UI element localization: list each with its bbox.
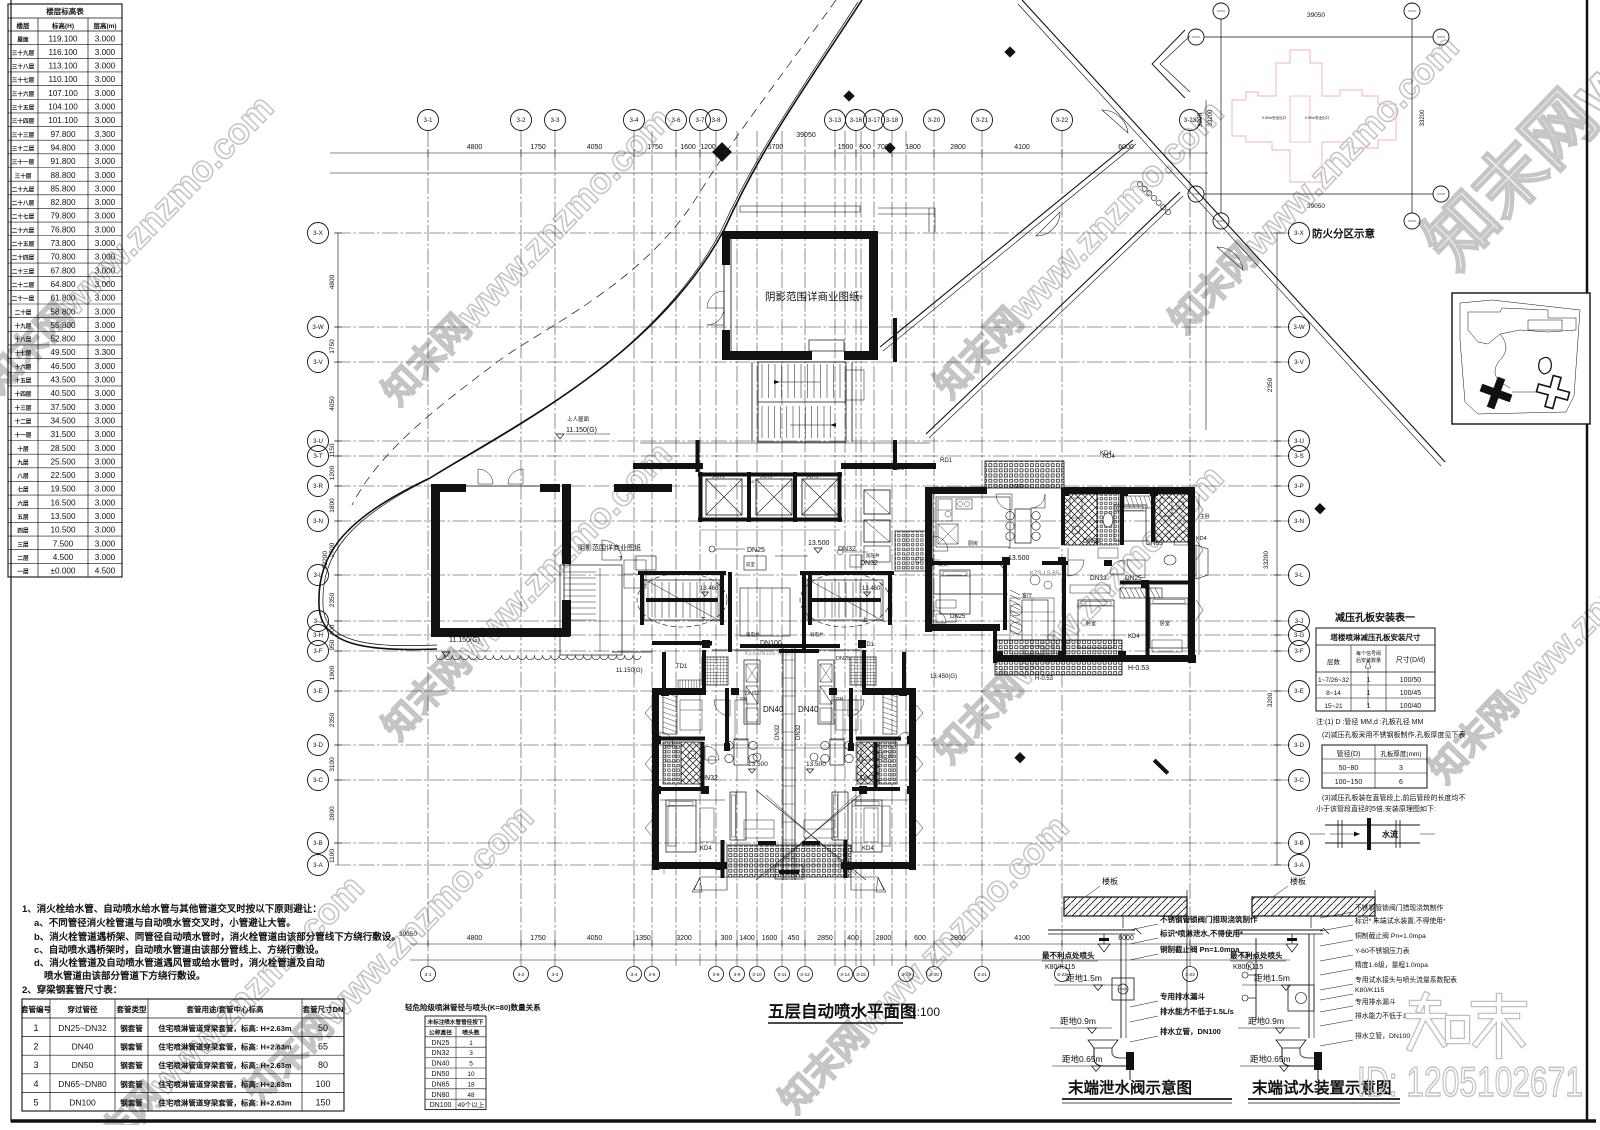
svg-text:DN32: DN32 (432, 1050, 450, 1057)
svg-text:3: 3 (469, 1050, 473, 1057)
svg-text:91.800: 91.800 (50, 157, 75, 166)
svg-text:33200: 33200 (1263, 551, 1270, 569)
svg-text:3.300: 3.300 (95, 348, 116, 357)
svg-text:K80/K115: K80/K115 (1045, 964, 1075, 971)
svg-text:1~7/26~32: 1~7/26~32 (1318, 677, 1349, 684)
svg-text:DN40: DN40 (72, 1042, 94, 1052)
svg-text:阴影范围详商业图纸: 阴影范围详商业图纸 (578, 543, 641, 552)
svg-text:距地0.65m: 距地0.65m (1250, 1054, 1291, 1064)
svg-text:82.800: 82.800 (50, 198, 75, 207)
svg-text:尺寸(D/d): 尺寸(D/d) (1396, 655, 1426, 664)
svg-text:3.000: 3.000 (95, 225, 116, 234)
svg-text:1350: 1350 (635, 935, 651, 942)
svg-text:3.000: 3.000 (95, 34, 116, 43)
svg-text:标高(H): 标高(H) (51, 21, 74, 30)
svg-text:3-A: 3-A (313, 862, 324, 869)
svg-text:卧室: 卧室 (1160, 620, 1170, 627)
svg-text:3-6: 3-6 (672, 117, 682, 124)
svg-text:4.500: 4.500 (53, 553, 74, 562)
svg-text:0.90m安全出口: 0.90m安全出口 (1305, 115, 1330, 120)
svg-text:住宅喷淋管道穿梁套管，标高: H+2.63m: 住宅喷淋管道穿梁套管，标高: H+2.63m (158, 1079, 291, 1089)
svg-text:100~150: 100~150 (1335, 779, 1363, 786)
svg-text:三十一层: 三十一层 (12, 158, 35, 166)
svg-text:4800: 4800 (467, 935, 483, 942)
svg-text:3-9: 3-9 (734, 972, 741, 978)
svg-text:3-R: 3-R (313, 483, 324, 490)
svg-text:3200: 3200 (1267, 692, 1274, 707)
svg-text:住宅喷淋管道穿梁套管，标高: H+2.63m: 住宅喷淋管道穿梁套管，标高: H+2.63m (158, 1042, 291, 1052)
svg-text:3-5: 3-5 (649, 972, 656, 978)
svg-text:3: 3 (1399, 765, 1403, 772)
svg-text:3-X: 3-X (313, 230, 323, 237)
svg-text:7.500: 7.500 (53, 539, 74, 548)
svg-text:2800: 2800 (950, 144, 966, 151)
svg-text:二十四层: 二十四层 (12, 254, 35, 262)
svg-text:11.150(G): 11.150(G) (616, 668, 643, 674)
svg-text:3.000: 3.000 (95, 212, 116, 221)
svg-text:ID: 1205102671: ID: 1205102671 (1357, 1058, 1583, 1105)
svg-text:10.500: 10.500 (50, 526, 75, 535)
svg-text:楼板: 楼板 (1102, 876, 1118, 886)
svg-text:55.800: 55.800 (50, 321, 75, 330)
svg-text:46.500: 46.500 (50, 362, 75, 371)
svg-text:DN32: DN32 (700, 775, 718, 782)
svg-text:2800: 2800 (950, 935, 966, 942)
svg-text:KD4: KD4 (1196, 536, 1207, 542)
svg-text:RD1: RD1 (940, 458, 953, 464)
svg-text:13.500: 13.500 (808, 540, 830, 547)
svg-text:48: 48 (467, 1092, 475, 1099)
svg-text:专用试水接头与喷头流量系数配表: 专用试水接头与喷头流量系数配表 (1355, 975, 1457, 984)
svg-text:1500: 1500 (838, 144, 854, 151)
svg-text:DN25: DN25 (432, 1040, 450, 1047)
svg-text:商业: 商业 (855, 293, 863, 299)
svg-text:2800: 2800 (876, 935, 892, 942)
svg-text:3.000: 3.000 (95, 485, 116, 494)
svg-text:119.100: 119.100 (49, 34, 78, 43)
svg-text:49.500: 49.500 (50, 348, 75, 357)
svg-text:十六层: 十六层 (15, 363, 32, 371)
svg-text:前室: 前室 (746, 561, 755, 568)
svg-text:19.500: 19.500 (50, 485, 75, 494)
svg-text:3.000: 3.000 (95, 239, 116, 248)
svg-text:2350: 2350 (329, 592, 336, 607)
svg-text:150: 150 (315, 1097, 330, 1107)
svg-text:H-0.53: H-0.53 (1035, 676, 1054, 682)
svg-text:3-H: 3-H (313, 632, 323, 639)
svg-text:600: 600 (914, 935, 926, 942)
svg-text:钢套管: 钢套管 (120, 1060, 143, 1070)
svg-text:100/45: 100/45 (1400, 690, 1422, 697)
svg-text:107.100: 107.100 (48, 89, 78, 98)
svg-text:距地0.9m: 距地0.9m (1248, 1016, 1284, 1026)
svg-text:1150: 1150 (329, 443, 336, 457)
svg-text:住宅喷淋管道穿梁套管，标高: H+2.63m: 住宅喷淋管道穿梁套管，标高: H+2.63m (158, 1097, 291, 1107)
svg-text:2800: 2800 (329, 806, 336, 821)
svg-text:50~80: 50~80 (1339, 765, 1359, 772)
svg-text:强电井: 强电井 (746, 631, 760, 638)
svg-text:49个以上: 49个以上 (458, 1100, 485, 1109)
svg-text:层高(m): 层高(m) (92, 21, 116, 30)
svg-text:3-F: 3-F (1294, 648, 1304, 655)
svg-text:3-19: 3-19 (901, 972, 911, 978)
svg-text:3-DT1: 3-DT1 (712, 474, 725, 479)
svg-text:DN50: DN50 (432, 1071, 450, 1078)
svg-text:3.000: 3.000 (95, 553, 116, 562)
svg-text:16.500: 16.500 (50, 498, 75, 507)
svg-text:39050: 39050 (399, 931, 417, 938)
svg-text:39050: 39050 (796, 132, 816, 139)
svg-text:1: 1 (1367, 703, 1371, 710)
svg-text:88.800: 88.800 (50, 171, 75, 180)
svg-text:上人屋面: 上人屋面 (567, 415, 590, 423)
svg-text:DN65: DN65 (432, 1081, 450, 1088)
svg-text:3-13: 3-13 (829, 117, 842, 124)
svg-text:轻危险级喷淋管径与喷头(K=80)数量关系: 轻危险级喷淋管径与喷头(K=80)数量关系 (405, 1002, 541, 1012)
svg-text:十层: 十层 (17, 445, 29, 453)
svg-text:61.800: 61.800 (50, 294, 75, 303)
svg-text:DN40: DN40 (432, 1061, 450, 1068)
svg-text:十三层: 十三层 (15, 404, 32, 412)
svg-text:1200: 1200 (329, 465, 336, 480)
svg-text:3-DT2: 3-DT2 (760, 474, 773, 479)
svg-text:3-U: 3-U (1294, 438, 1304, 445)
svg-text:排水立管，DN100: 排水立管，DN100 (1160, 1026, 1221, 1036)
svg-text:层数: 层数 (1327, 657, 1341, 666)
svg-text:13.450(G): 13.450(G) (930, 674, 957, 680)
svg-text:楼板: 楼板 (1290, 876, 1306, 886)
svg-text:3-4: 3-4 (630, 117, 640, 124)
svg-text:80: 80 (318, 1060, 328, 1070)
svg-text:十一层: 十一层 (15, 431, 32, 439)
svg-text:64.800: 64.800 (50, 280, 75, 289)
svg-text:3-20: 3-20 (928, 117, 941, 124)
svg-text:1800: 1800 (329, 498, 336, 513)
svg-text:玄关: 玄关 (938, 561, 948, 568)
svg-text:小于该管段直径的5倍,安装原理图如下:: 小于该管段直径的5倍,安装原理图如下: (1316, 804, 1436, 813)
svg-text:4.500: 4.500 (95, 567, 116, 576)
svg-text:标识* 末端试水装置,不得使用*: 标识* 末端试水装置,不得使用* (1355, 916, 1446, 925)
svg-text:住宅喷淋管道穿梁套管，标高: H+2.63m: 住宅喷淋管道穿梁套管，标高: H+2.63m (158, 1023, 291, 1033)
svg-text:3-21: 3-21 (977, 972, 987, 978)
svg-text:3-E: 3-E (1294, 688, 1304, 695)
svg-text:3-3: 3-3 (551, 117, 561, 124)
svg-text:3.000: 3.000 (95, 184, 116, 193)
svg-text:楼层: 楼层 (17, 21, 31, 30)
svg-text:3-B: 3-B (1294, 840, 1304, 847)
svg-text:300: 300 (721, 935, 733, 942)
svg-text:3.000: 3.000 (95, 116, 116, 125)
svg-text:3.000: 3.000 (95, 321, 116, 330)
svg-text:3-X: 3-X (1294, 230, 1304, 237)
svg-text:3.000: 3.000 (95, 471, 116, 480)
svg-text:13.500: 13.500 (748, 761, 768, 768)
svg-text:79.800: 79.800 (50, 212, 75, 221)
svg-text:塔楼喷淋减压孔板安装尺寸: 塔楼喷淋减压孔板安装尺寸 (1331, 632, 1421, 642)
svg-text:22.500: 22.500 (50, 471, 75, 480)
svg-text:专用排水漏斗: 专用排水漏斗 (1355, 997, 1396, 1006)
svg-text:3-P: 3-P (1294, 483, 1304, 490)
svg-text:3.000: 3.000 (95, 498, 116, 507)
svg-text:5: 5 (469, 1061, 473, 1068)
svg-text:4100: 4100 (1014, 935, 1030, 942)
svg-text:DN32: DN32 (860, 775, 878, 782)
svg-text:七层: 七层 (17, 486, 29, 494)
svg-text:6: 6 (1399, 779, 1403, 786)
svg-text:二十七层: 二十七层 (12, 213, 35, 221)
svg-text:一层: 一层 (17, 568, 29, 576)
svg-text:距地0.65m: 距地0.65m (1062, 1054, 1103, 1064)
svg-text:3.000: 3.000 (95, 253, 116, 262)
svg-text:4100: 4100 (1014, 144, 1030, 151)
svg-text:3.000: 3.000 (95, 430, 116, 439)
svg-text:100/40: 100/40 (1400, 703, 1422, 710)
svg-text:18: 18 (467, 1081, 475, 1088)
svg-text:2350: 2350 (329, 712, 336, 727)
svg-text:3-12: 3-12 (800, 972, 810, 978)
svg-text:3.000: 3.000 (95, 526, 116, 535)
svg-text:1750: 1750 (530, 144, 546, 151)
svg-text:十八层: 十八层 (15, 336, 32, 344)
svg-text:RD1: RD1 (893, 466, 904, 472)
svg-text:11.150(G): 11.150(G) (449, 637, 480, 644)
svg-text:3-2: 3-2 (517, 117, 527, 124)
svg-text:不锈钢管锁阀门措现浇筑制作: 不锈钢管锁阀门措现浇筑制作 (1160, 914, 1258, 924)
svg-text:楼层标高表: 楼层标高表 (46, 6, 84, 16)
svg-text:三十九层: 三十九层 (12, 49, 35, 57)
svg-text:三十五层: 三十五层 (12, 104, 35, 112)
svg-text:下: 下 (618, 556, 623, 562)
svg-text:二十五层: 二十五层 (12, 240, 35, 248)
svg-text:3.000: 3.000 (95, 171, 116, 180)
svg-text:3-L: 3-L (1295, 572, 1305, 579)
svg-text:3-C: 3-C (313, 777, 324, 784)
svg-text:13.500: 13.500 (1008, 555, 1030, 562)
svg-text:3.000: 3.000 (95, 457, 116, 466)
svg-text:1800: 1800 (905, 144, 921, 151)
svg-text:上: 上 (862, 616, 868, 624)
svg-text:3-23: 3-23 (1184, 117, 1197, 124)
svg-text:3-16: 3-16 (850, 117, 863, 124)
svg-text:最不利点处喷头: 最不利点处喷头 (1230, 950, 1283, 960)
svg-text:十七层: 十七层 (15, 349, 32, 357)
svg-text:十五层: 十五层 (15, 377, 32, 385)
svg-text:DN32: DN32 (1010, 484, 1024, 490)
svg-text:DN25: DN25 (950, 614, 966, 620)
svg-text:三十二层: 三十二层 (12, 144, 35, 152)
svg-text:3-N: 3-N (1294, 518, 1304, 525)
svg-text:33200: 33200 (1420, 109, 1426, 126)
svg-text:3.000: 3.000 (95, 389, 116, 398)
svg-text:67.800: 67.800 (50, 266, 75, 275)
svg-text:13.500: 13.500 (806, 761, 826, 768)
svg-text:94.800: 94.800 (50, 143, 75, 152)
svg-text:3100: 3100 (329, 757, 336, 772)
svg-text:76.800: 76.800 (50, 225, 75, 234)
svg-text:九层: 九层 (16, 458, 29, 466)
svg-text:3.000: 3.000 (95, 307, 116, 316)
svg-text:13.460: 13.460 (700, 586, 719, 592)
svg-text:3200: 3200 (1197, 112, 1204, 127)
svg-text:73.800: 73.800 (50, 239, 75, 248)
svg-text:3-11: 3-11 (777, 972, 787, 978)
svg-text:三十六层: 三十六层 (12, 90, 35, 98)
svg-text:4: 4 (33, 1079, 38, 1089)
svg-text:未标注喷水管管径按下: 未标注喷水管管径按下 (428, 1018, 484, 1026)
svg-text:33200: 33200 (1208, 109, 1214, 126)
svg-text:精度1.6级，量程1.0mpa: 精度1.6级，量程1.0mpa (1355, 960, 1428, 969)
svg-text:二十二层: 二十二层 (12, 281, 35, 289)
svg-text:1600: 1600 (762, 935, 778, 942)
svg-text:排水立管，DN100: 排水立管，DN100 (1355, 1031, 1410, 1040)
svg-text:3-2: 3-2 (518, 972, 525, 978)
svg-text:最不利点处喷头: 最不利点处喷头 (1042, 950, 1095, 960)
svg-text:DN32: DN32 (1090, 575, 1107, 582)
svg-text:DN32: DN32 (775, 724, 781, 740)
svg-text:a、不同管径消火栓管道与自动喷水管交叉时，小管避让大管。: a、不同管径消火栓管道与自动喷水管交叉时，小管避让大管。 (34, 917, 296, 929)
svg-text:1750: 1750 (329, 339, 336, 354)
svg-text:每个信号阀: 每个信号阀 (1356, 650, 1381, 657)
svg-text:(3)减压孔板装在直管段上,前后管段的长度均不: (3)减压孔板装在直管段上,前后管段的长度均不 (1322, 793, 1466, 802)
svg-text:GM: GM (836, 696, 844, 701)
svg-text:3-20: 3-20 (929, 972, 939, 978)
svg-text:DN40: DN40 (798, 705, 819, 714)
svg-text:标识*喷淋泄水,不得使用*: 标识*喷淋泄水,不得使用* (1159, 928, 1243, 938)
svg-text:1750: 1750 (530, 935, 546, 942)
svg-text:二十六层: 二十六层 (12, 226, 35, 234)
svg-text:3-T: 3-T (313, 453, 323, 460)
svg-text:3-8: 3-8 (712, 117, 722, 124)
svg-text:3-10: 3-10 (752, 972, 762, 978)
svg-text:注:(1) D :管径 MM,d :孔板孔径 MM: 注:(1) D :管径 MM,d :孔板孔径 MM (1316, 717, 1423, 726)
svg-text:减压孔板安装表一: 减压孔板安装表一 (1335, 611, 1415, 624)
svg-text:1: 1 (33, 1023, 38, 1033)
svg-text:喷头数: 喷头数 (462, 1028, 480, 1036)
svg-text:DN32: DN32 (860, 560, 878, 567)
svg-text:Y-60不锈钢压力表: Y-60不锈钢压力表 (1355, 946, 1410, 955)
svg-text:3-4: 3-4 (631, 972, 638, 978)
svg-text:KD4: KD4 (1100, 451, 1112, 457)
svg-text:距地1.5m: 距地1.5m (1066, 973, 1102, 983)
svg-text:钢套管: 钢套管 (120, 1042, 143, 1052)
svg-text:3-D: 3-D (313, 742, 324, 749)
svg-text:三十三层: 三十三层 (12, 131, 35, 139)
svg-text:1: 1 (469, 1040, 473, 1047)
svg-text:400: 400 (847, 935, 859, 942)
svg-text:二十八层: 二十八层 (12, 199, 35, 207)
svg-text:钢套管: 钢套管 (120, 1023, 143, 1033)
svg-text:3-1: 3-1 (425, 972, 432, 978)
svg-text:屋面: 屋面 (17, 35, 29, 43)
svg-text:穿过管径: 穿过管径 (68, 1004, 98, 1014)
svg-text:DN25: DN25 (1125, 575, 1142, 582)
svg-text:100/50: 100/50 (1400, 677, 1422, 684)
svg-text:K80/K115: K80/K115 (1233, 964, 1263, 971)
svg-text:11.150(G): 11.150(G) (566, 427, 597, 434)
svg-text:H-0.53: H-0.53 (1128, 665, 1149, 672)
svg-text:1750: 1750 (647, 144, 663, 151)
svg-text:防火分区示意: 防火分区示意 (1312, 227, 1375, 240)
svg-text:DN32: DN32 (1083, 538, 1101, 545)
svg-text:套管编号: 套管编号 (21, 1004, 51, 1014)
svg-text:DN25~DN32: DN25~DN32 (58, 1023, 107, 1033)
svg-text:101.100: 101.100 (48, 116, 78, 125)
svg-text:TD1: TD1 (676, 664, 688, 670)
svg-text:d、消火栓管道及自动喷水管道遇风管或给水管时，消火栓管道及自: d、消火栓管道及自动喷水管道遇风管或给水管时，消火栓管道及自动 (34, 957, 325, 969)
svg-text:3-N: 3-N (313, 518, 323, 525)
svg-text:3-1: 3-1 (424, 117, 434, 124)
svg-text:3-3: 3-3 (552, 972, 559, 978)
svg-text:58.800: 58.800 (50, 307, 75, 316)
svg-text:13.460: 13.460 (862, 586, 881, 592)
svg-text:34.500: 34.500 (50, 416, 75, 425)
svg-text:65: 65 (318, 1042, 328, 1052)
svg-text:3-21: 3-21 (976, 117, 989, 124)
svg-text:六层: 六层 (17, 499, 29, 507)
svg-text:KD4: KD4 (1128, 634, 1140, 640)
svg-text:五层自动喷水平面图: 五层自动喷水平面图 (768, 1001, 917, 1021)
svg-text:2: 2 (33, 1042, 38, 1052)
svg-text:3-DT1: 3-DT1 (748, 479, 760, 484)
svg-text:450: 450 (788, 935, 800, 942)
svg-text:3-F: 3-F (313, 648, 323, 655)
svg-text:二十三层: 二十三层 (12, 267, 35, 275)
svg-text:孔板厚度(mm): 孔板厚度(mm) (1380, 749, 1421, 758)
svg-text:4800: 4800 (329, 274, 336, 289)
svg-text:3.300: 3.300 (95, 130, 116, 139)
svg-text:3-17: 3-17 (868, 117, 881, 124)
svg-text:1:100: 1:100 (910, 1005, 940, 1019)
svg-text:5700: 5700 (768, 144, 784, 151)
svg-text:3200: 3200 (676, 935, 692, 942)
svg-text:十九层: 十九层 (15, 322, 32, 330)
svg-text:三十七层: 三十七层 (12, 76, 35, 84)
svg-text:住宅喷淋管道穿梁套管，标高: H+2.63m: 住宅喷淋管道穿梁套管，标高: H+2.63m (158, 1060, 291, 1070)
svg-text:10: 10 (467, 1071, 475, 1078)
svg-text:1200: 1200 (700, 144, 716, 151)
svg-text:DN32: DN32 (796, 724, 802, 740)
svg-text:DN32: DN32 (745, 691, 759, 697)
svg-text:三十层: 三十层 (15, 172, 32, 180)
svg-text:3.000: 3.000 (95, 539, 116, 548)
svg-text:3-7: 3-7 (696, 117, 706, 124)
svg-text:15~21: 15~21 (1324, 703, 1343, 710)
svg-text:3.000: 3.000 (95, 198, 116, 207)
svg-text:4050: 4050 (329, 396, 336, 411)
svg-text:二十一层: 二十一层 (12, 295, 35, 303)
svg-text:弱电井: 弱电井 (810, 631, 824, 638)
svg-text:K80/K115: K80/K115 (1355, 987, 1385, 994)
svg-text:2、穿梁钢套管尺寸表：: 2、穿梁钢套管尺寸表： (22, 984, 122, 996)
svg-text:排水能力不低于1.5L/s: 排水能力不低于1.5L/s (1160, 1006, 1234, 1016)
svg-text:950: 950 (329, 639, 336, 650)
svg-text:39050: 39050 (1307, 12, 1325, 19)
svg-text:37.500: 37.500 (50, 403, 75, 412)
svg-text:600: 600 (859, 144, 871, 151)
svg-text:4800: 4800 (467, 144, 483, 151)
svg-text:1、消火栓给水管、自动喷水给水管与其他管道交叉时按以下原则避: 1、消火栓给水管、自动喷水给水管与其他管道交叉时按以下原则避让： (22, 903, 322, 915)
svg-text:DN65: DN65 (1146, 540, 1163, 547)
svg-text:3-S: 3-S (1294, 453, 1304, 460)
svg-text:1100: 1100 (329, 849, 336, 863)
svg-text:3-V: 3-V (1294, 359, 1305, 366)
svg-text:70.800: 70.800 (50, 253, 75, 262)
svg-text:3-22: 3-22 (1056, 117, 1069, 124)
svg-text:3-DT3: 3-DT3 (806, 474, 819, 479)
svg-text:专用排水漏斗: 专用排水漏斗 (1160, 991, 1205, 1001)
svg-text:104.100: 104.100 (48, 103, 78, 112)
svg-text:100: 100 (315, 1079, 330, 1089)
